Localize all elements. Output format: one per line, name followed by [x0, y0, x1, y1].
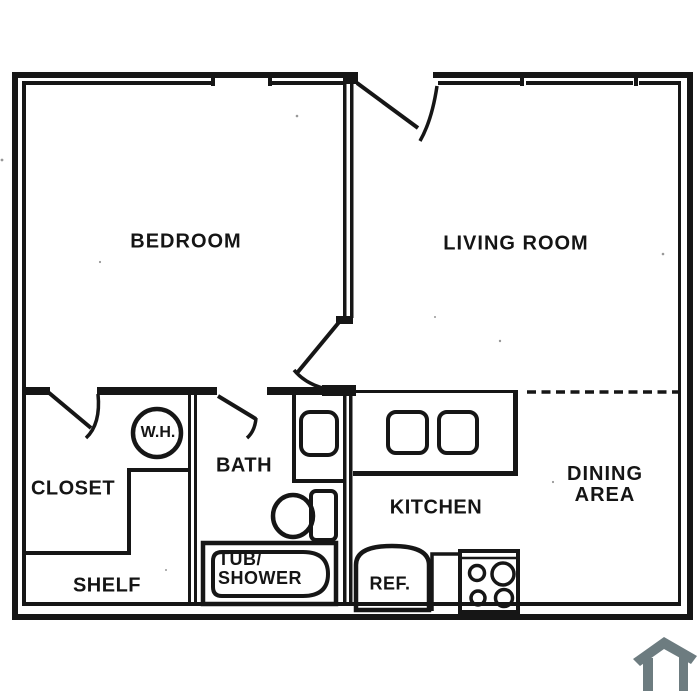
tub-shower-label-line2: SHOWER	[218, 569, 302, 588]
tub-shower-label: TUB/ SHOWER	[218, 550, 302, 588]
wall-segment-2	[97, 387, 217, 395]
outer-wall-bottom	[12, 614, 693, 620]
home-icon	[633, 637, 697, 691]
closet-bath-line-2	[194, 390, 197, 604]
bath-door-swing-arc	[247, 418, 256, 438]
dining-area-label: DINING AREA	[567, 464, 643, 506]
entry-door	[357, 83, 437, 141]
inner-wall-bedroom-top-1	[22, 81, 211, 85]
bath-label: BATH	[216, 455, 272, 478]
kitchen-sink-right	[439, 412, 477, 453]
dining-area-label-line1: DINING	[567, 464, 643, 485]
dining-area-label-line2: AREA	[567, 485, 643, 506]
window-tick-living-right	[634, 72, 638, 86]
bath-door	[218, 396, 256, 438]
kitchen-sink-left	[388, 412, 427, 453]
outer-wall-top-left	[12, 72, 358, 78]
bedroom-door	[294, 321, 340, 390]
closet-door	[48, 392, 99, 438]
window-tick-bedroom-left	[211, 72, 215, 86]
tub-shower-label-line1: TUB/	[218, 550, 302, 569]
inner-wall-bedroom-top-2	[271, 81, 345, 85]
outer-wall-top-right	[433, 72, 693, 78]
divider-top-cap	[343, 72, 358, 84]
outer-wall-right	[687, 72, 693, 620]
inner-wall-left	[22, 81, 26, 606]
inner-wall-right	[678, 81, 681, 604]
entry-door-swing-arc	[420, 86, 437, 141]
closet-bath-line-1	[188, 390, 191, 604]
stove-burner-top-right	[492, 563, 514, 585]
bath-kitchen-line-1	[343, 390, 347, 604]
home-icon-right-leg	[679, 656, 688, 691]
bedroom-living-divider-wall	[336, 72, 358, 324]
scan-noise	[1, 115, 665, 571]
inner-wall-living-top-3	[639, 81, 681, 85]
inner-wall-living-top-2	[526, 81, 633, 85]
kitchen-counter-right	[513, 392, 518, 476]
bath-sink	[301, 412, 337, 455]
toilet-bowl	[273, 495, 313, 537]
refrigerator-label: REF.	[369, 574, 410, 595]
kitchen-label: KITCHEN	[390, 497, 482, 520]
inner-wall-living-top-1	[438, 81, 520, 85]
floor-plan-image: BEDROOM LIVING ROOM CLOSET SHELF BATH KI…	[0, 0, 700, 700]
closet-bath-divider-wall	[188, 390, 197, 604]
bedroom-door-leaf	[297, 321, 340, 373]
bedroom-label: BEDROOM	[130, 231, 241, 254]
kitchen-counter-bottom	[353, 471, 518, 476]
divider-line-right	[350, 78, 354, 318]
closet-label: CLOSET	[31, 478, 115, 501]
divider-line-left	[343, 78, 347, 318]
stove-burner-top-left	[470, 566, 485, 581]
entry-door-leaf	[357, 83, 418, 128]
water-heater-label: W.H.	[141, 424, 176, 442]
bath-kitchen-divider-wall	[343, 390, 353, 604]
closet-door-swing-arc	[86, 394, 99, 438]
shelf-label: SHELF	[73, 575, 141, 598]
home-icon-left-leg	[643, 658, 653, 691]
closet-door-leaf	[48, 392, 91, 428]
outer-wall-left	[12, 72, 18, 620]
window-tick-bedroom-right	[268, 72, 272, 86]
wall-segment-1	[22, 387, 50, 395]
kitchen-top-wall-line	[353, 390, 518, 393]
living-room-label: LIVING ROOM	[443, 233, 588, 256]
bath-kitchen-line-2	[349, 390, 353, 604]
window-tick-living-left	[520, 72, 524, 86]
bath-door-leaf	[218, 396, 256, 419]
